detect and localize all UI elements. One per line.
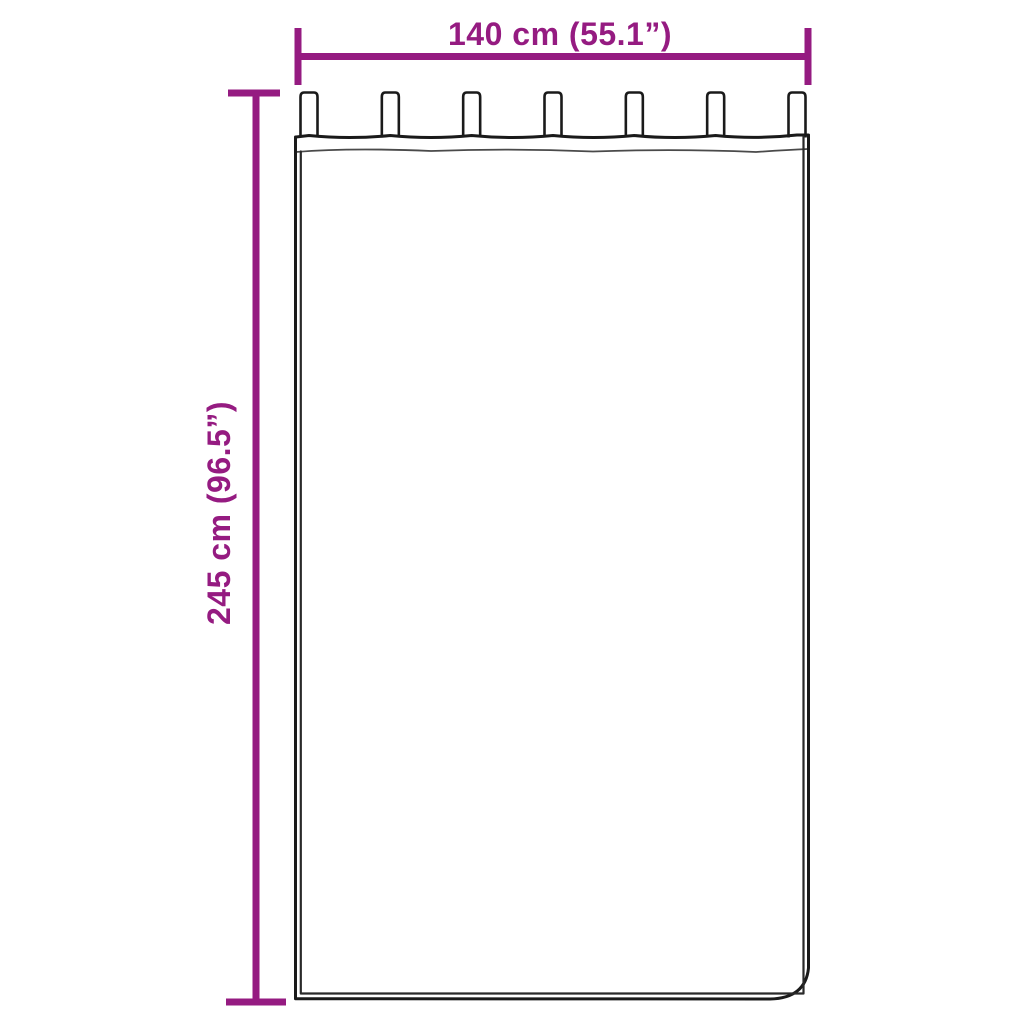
curtain-tab	[626, 93, 643, 138]
height-dimension-label: 245 cm (96.5”)	[201, 401, 237, 625]
diagram-svg: 140 cm (55.1”) 245 cm (96.5”)	[0, 0, 1024, 1024]
height-dimension: 245 cm (96.5”)	[201, 93, 286, 1002]
curtain-tab	[301, 93, 318, 138]
curtain-header-band-seam	[296, 149, 808, 152]
curtain-tab	[382, 93, 399, 138]
product-dimension-diagram: 140 cm (55.1”) 245 cm (96.5”)	[0, 0, 1024, 1024]
width-dimension: 140 cm (55.1”)	[298, 16, 808, 85]
curtain-inner-outline	[301, 137, 804, 994]
width-dimension-label: 140 cm (55.1”)	[448, 16, 672, 52]
curtain-tab	[789, 93, 806, 138]
curtain-tab	[545, 93, 562, 138]
curtain-drawing	[296, 93, 809, 1000]
curtain-outer-outline	[296, 136, 809, 1000]
curtain-tab	[463, 93, 480, 138]
curtain-tabs	[301, 93, 806, 138]
curtain-tab	[707, 93, 724, 138]
